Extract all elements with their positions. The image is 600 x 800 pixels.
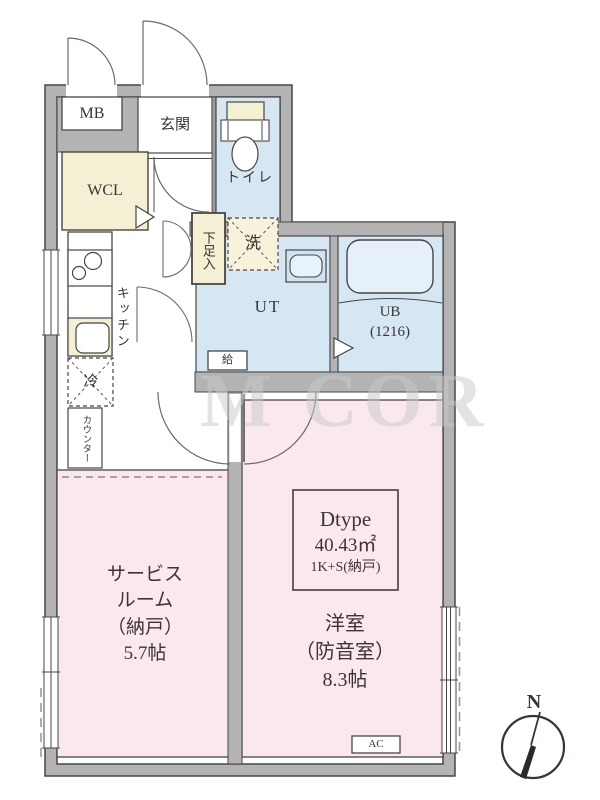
kitchen-window xyxy=(42,250,60,335)
toilet-bowl xyxy=(232,137,258,171)
compass-needle-bottom xyxy=(520,745,536,779)
stove-burner-small xyxy=(73,267,86,280)
washer-text: 洗 xyxy=(245,233,261,255)
mb-text: MB xyxy=(80,103,105,125)
refrigerator-label: 冷 xyxy=(70,360,112,404)
service-room-text-2: ルーム xyxy=(117,588,173,614)
mb-door xyxy=(68,38,115,85)
wall-ut-bottom xyxy=(195,372,443,392)
ac-label: AC xyxy=(352,736,400,752)
entrance-door xyxy=(143,21,207,85)
utility-text: UT xyxy=(255,296,282,319)
sink-bowl xyxy=(76,323,109,353)
western-room-text-2: （防音室） xyxy=(295,638,395,666)
washer-label: 洗 xyxy=(228,222,278,266)
entrance-text: 玄関 xyxy=(160,115,190,135)
ac-text: AC xyxy=(368,737,383,752)
unit-layout-text: 1K+S(納戸) xyxy=(310,559,380,578)
counter-text: カウンター xyxy=(79,415,92,463)
service-room-label: サービス ルーム （納戸） 5.7帖 xyxy=(70,557,220,672)
compass xyxy=(502,712,564,779)
counter-label: カウンター xyxy=(72,411,98,466)
north-text: N xyxy=(527,689,541,716)
toilet-text: トイレ xyxy=(226,170,274,189)
bathtub xyxy=(347,240,433,293)
hall-door xyxy=(154,157,209,212)
shoe-cabinet-doors xyxy=(163,221,191,277)
floor-plan: MB 玄関 トイレ WCL 下足入 洗 キッチン UT UB (1216) 給 … xyxy=(0,0,600,800)
kitchen-text: キッチン xyxy=(113,286,131,350)
bath-text-2: (1216) xyxy=(370,322,410,342)
shoe-cabinet-label: 下足入 xyxy=(194,218,222,282)
western-room-text-1: 洋室 xyxy=(325,610,365,638)
western-room-window xyxy=(440,607,460,753)
mb-door-gap xyxy=(66,84,117,97)
wall-toilet-west xyxy=(212,97,216,222)
water-supply-text: 給 xyxy=(222,353,233,368)
wcl-label: WCL xyxy=(62,154,148,228)
mb-label: MB xyxy=(62,99,122,129)
hallway-swing-door xyxy=(158,392,230,464)
kitchen-unit xyxy=(68,232,112,356)
north-label: N xyxy=(520,691,548,713)
toilet-label: トイレ xyxy=(220,167,280,191)
western-room-text-3: 8.3帖 xyxy=(323,666,368,694)
refrigerator-text: 冷 xyxy=(83,372,98,392)
unit-info-label: Dtype 40.43㎡ 1K+S(納戸) xyxy=(294,496,397,586)
wcl-text: WCL xyxy=(87,180,123,202)
kitchen-passage-door xyxy=(137,287,192,342)
western-room-label: 洋室 （防音室） 8.3帖 xyxy=(250,607,440,697)
washbasin-bowl xyxy=(290,255,322,277)
kitchen-label: キッチン xyxy=(111,252,133,384)
water-supply-label: 給 xyxy=(208,350,247,370)
bath-text-1: UB xyxy=(380,302,401,322)
entrance-door-gap xyxy=(141,84,209,97)
toilet-cistern xyxy=(227,102,264,122)
entrance-label: 玄関 xyxy=(138,100,212,150)
stove-burner-large xyxy=(85,253,102,270)
service-room-text-4: 5.7帖 xyxy=(124,641,167,667)
service-room-text-3: （納戸） xyxy=(107,615,183,641)
unit-area-text: 40.43㎡ xyxy=(315,533,377,559)
shoe-cabinet-text: 下足入 xyxy=(199,231,217,270)
utility-label: UT xyxy=(238,294,298,320)
western-door-gap xyxy=(229,394,240,462)
bath-label: UB (1216) xyxy=(342,301,438,343)
service-room-window xyxy=(41,617,60,762)
service-room-text-1: サービス xyxy=(107,562,183,588)
unit-type-text: Dtype xyxy=(320,505,371,533)
